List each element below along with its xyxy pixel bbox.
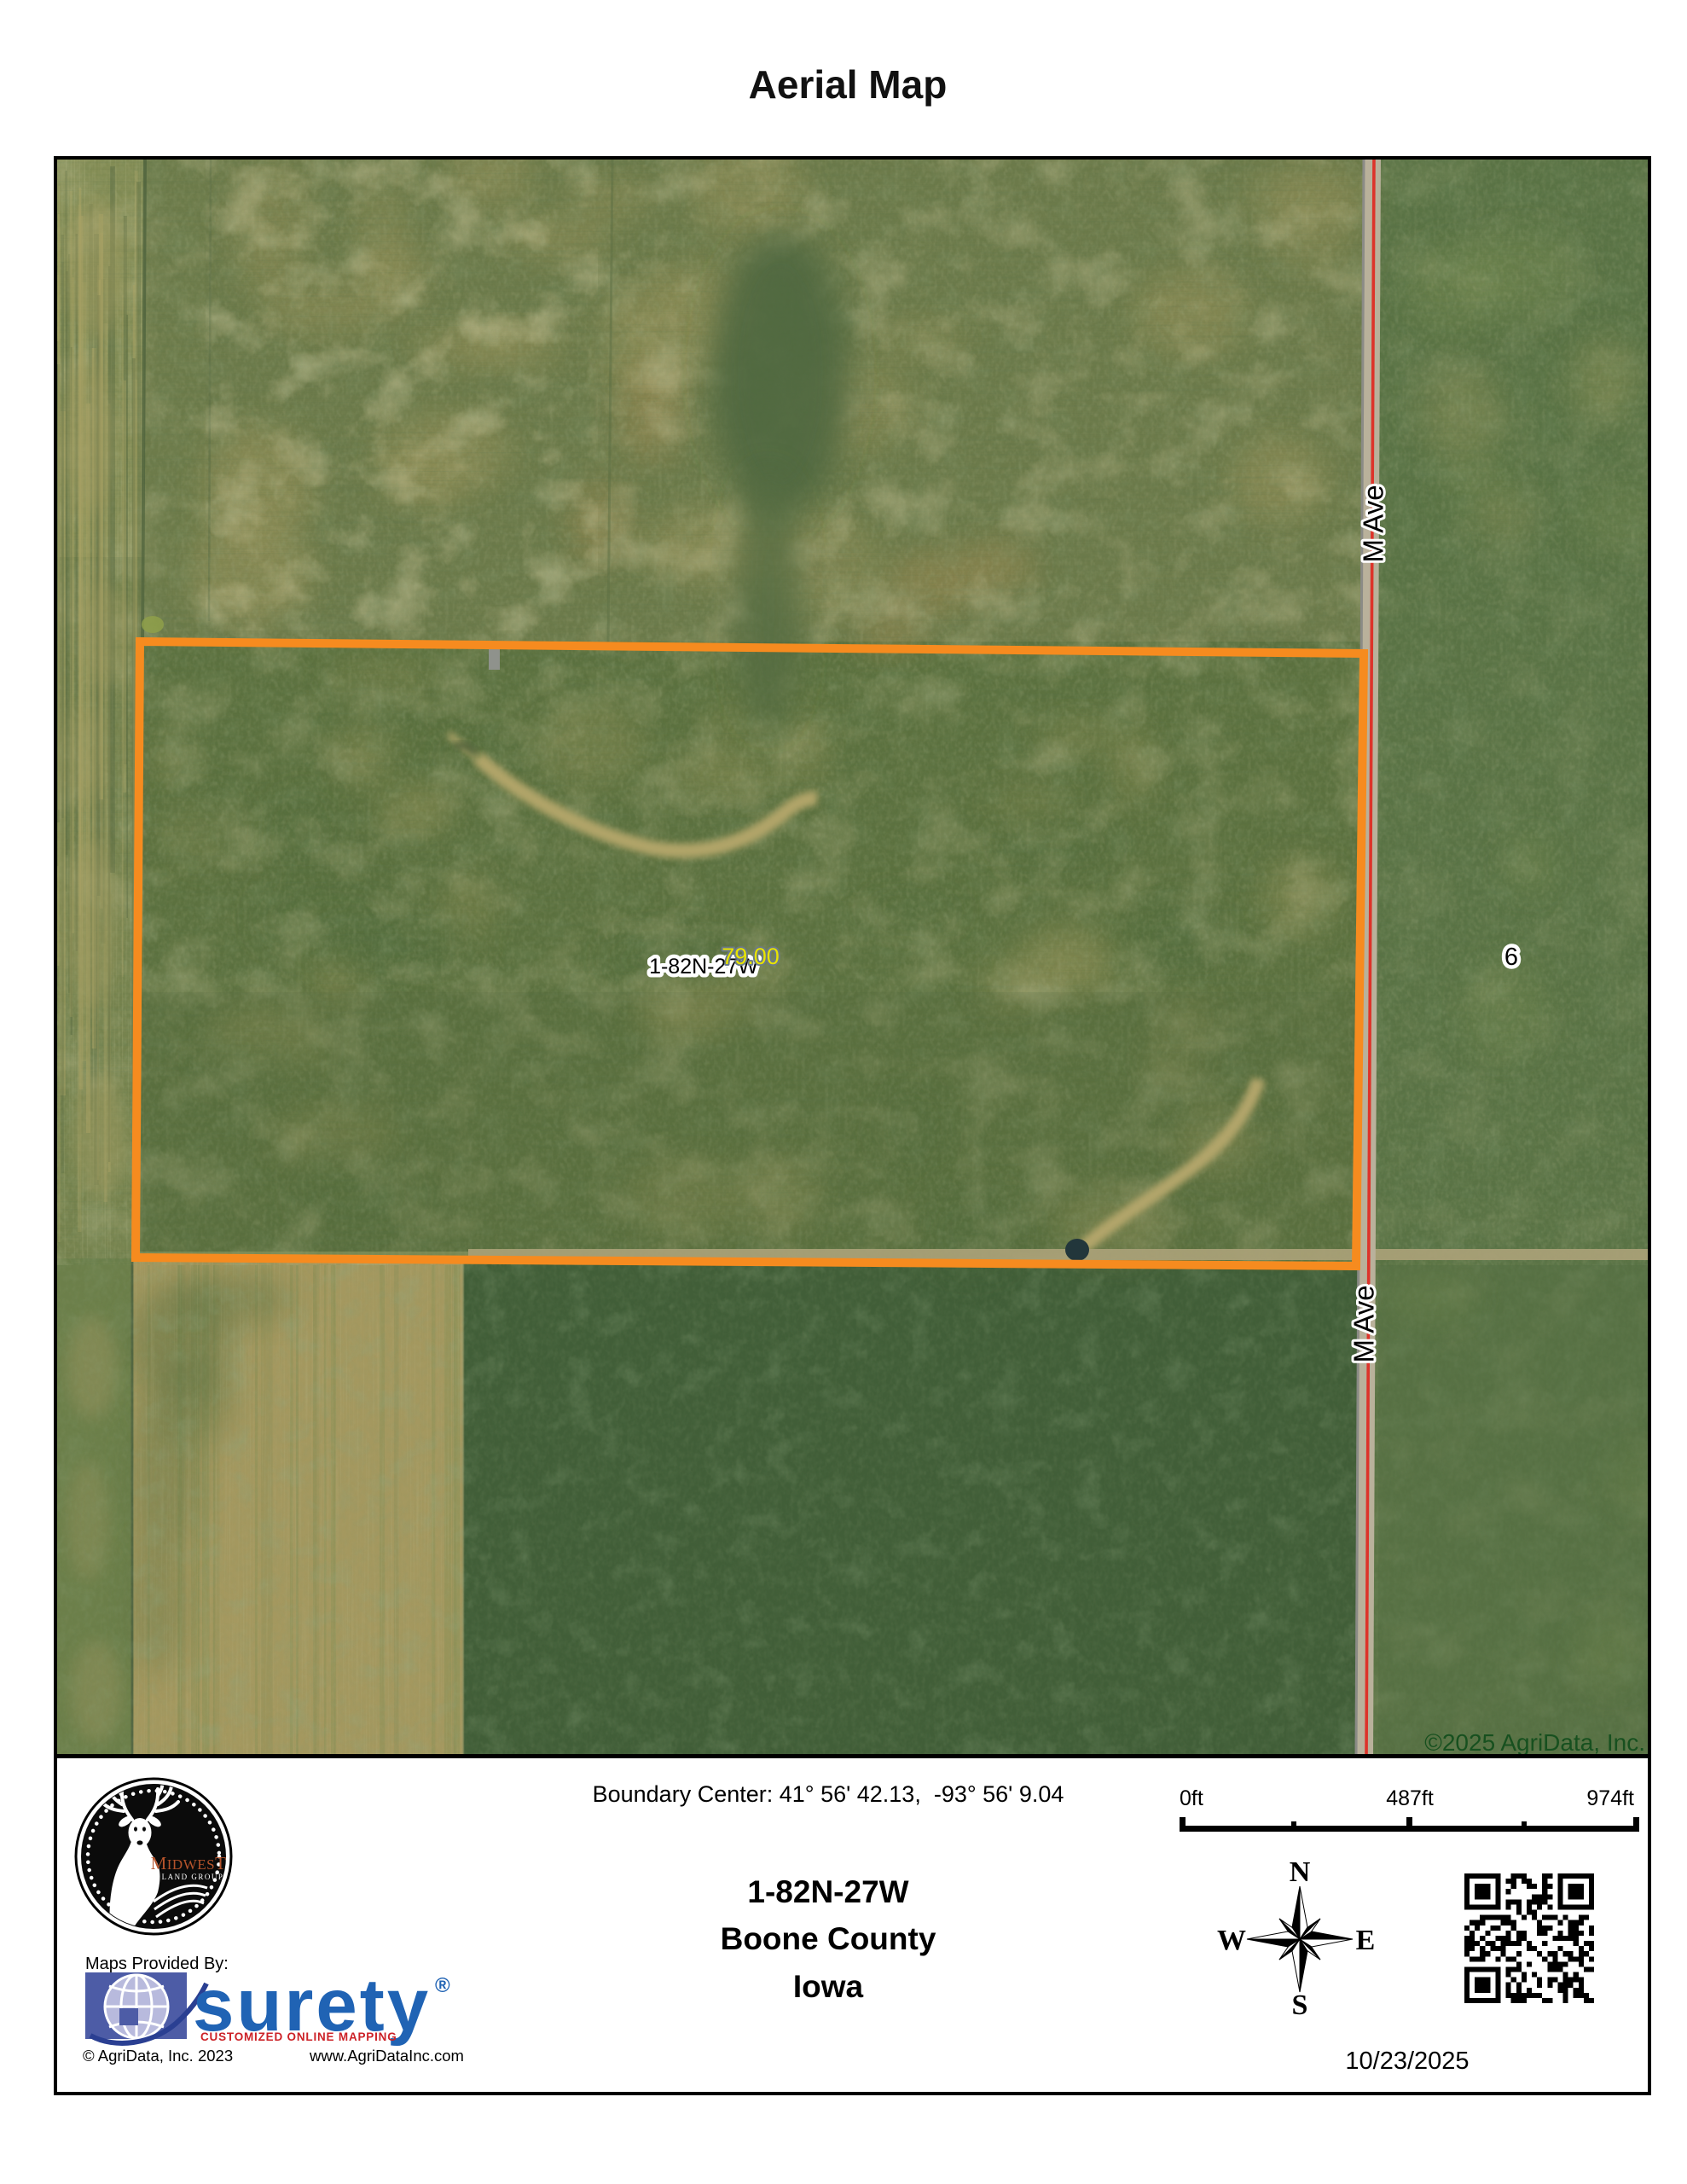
svg-text:974ft: 974ft [1586, 1786, 1634, 1810]
svg-text:E: E [1356, 1925, 1376, 1956]
svg-text:®: ® [435, 1974, 450, 1997]
svg-text:LAND GROUP: LAND GROUP [162, 1873, 224, 1881]
svg-text:6: 6 [1504, 944, 1518, 971]
svg-text:79.00: 79.00 [722, 944, 780, 969]
svg-text:CUSTOMIZED ONLINE MAPPING: CUSTOMIZED ONLINE MAPPING [200, 2030, 397, 2043]
svg-text:©2025 AgriData, Inc.: ©2025 AgriData, Inc. [1424, 1729, 1645, 1756]
svg-text:W: W [1217, 1925, 1246, 1956]
svg-text:M Ave: M Ave [1348, 1285, 1380, 1362]
svg-text:MIDWEST: MIDWEST [151, 1853, 227, 1873]
svg-text:N: N [1290, 1856, 1311, 1888]
svg-text:487ft: 487ft [1386, 1786, 1434, 1810]
svg-text:0ft: 0ft [1180, 1786, 1203, 1810]
svg-text:S: S [1292, 1989, 1308, 2021]
svg-text:M Ave: M Ave [1358, 485, 1389, 562]
